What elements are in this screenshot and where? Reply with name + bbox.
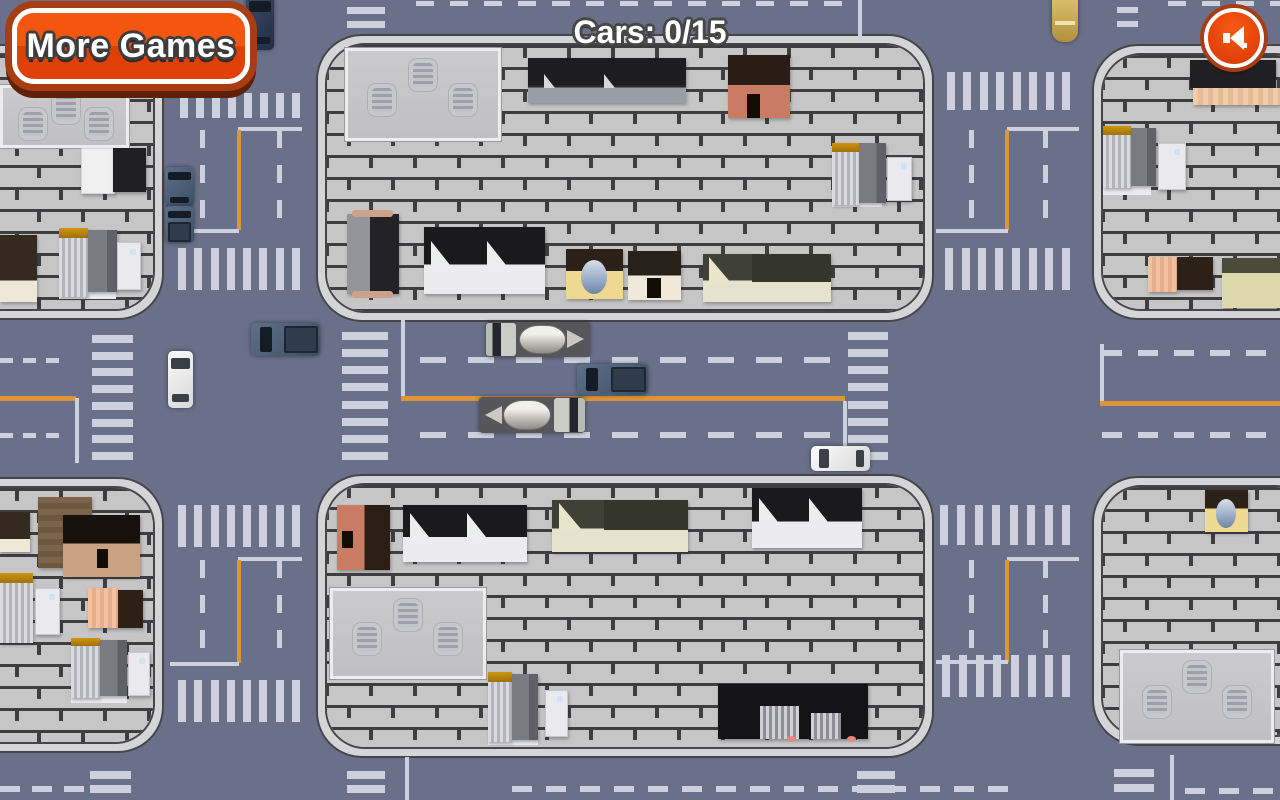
cargo-bed bbox=[168, 222, 192, 242]
building-black-complex bbox=[718, 684, 868, 739]
lane-dash bbox=[0, 433, 13, 438]
roof-vent bbox=[413, 63, 433, 87]
lane-dash bbox=[660, 432, 686, 438]
roof-gable bbox=[431, 241, 450, 265]
crosswalk-stripe bbox=[92, 402, 133, 410]
door bbox=[342, 531, 353, 548]
center-line-orange bbox=[1005, 130, 1009, 230]
lane-dash bbox=[420, 432, 446, 438]
vehicle-pickup[interactable] bbox=[577, 364, 648, 395]
gold-roof-strip bbox=[59, 228, 88, 238]
lane-dash bbox=[277, 130, 282, 148]
crosswalk-stripe bbox=[1010, 505, 1018, 545]
lane-dash bbox=[200, 595, 205, 613]
building-darkbrown-box bbox=[118, 590, 143, 628]
crosswalk-stripe bbox=[244, 93, 252, 118]
lane-dash bbox=[1174, 350, 1194, 356]
windshield bbox=[260, 327, 272, 352]
speaker-icon bbox=[1218, 22, 1250, 54]
truck-cab bbox=[554, 398, 585, 432]
lane-dash bbox=[756, 357, 782, 363]
crosswalk-stripe bbox=[92, 352, 133, 360]
stop-line bbox=[857, 771, 895, 779]
lane-dash bbox=[660, 357, 686, 363]
building-door-unit bbox=[887, 157, 912, 201]
building-door-unit bbox=[128, 652, 150, 696]
crosswalk-stripe bbox=[342, 452, 388, 460]
gold-roof-strip bbox=[71, 638, 100, 646]
roof-vent bbox=[398, 603, 418, 627]
stop-line bbox=[347, 771, 385, 779]
crosswalk-stripe bbox=[976, 655, 984, 697]
roof-gable bbox=[604, 74, 615, 88]
lane-dash bbox=[23, 358, 36, 363]
building-dark-unit bbox=[1131, 128, 1156, 186]
game-stage: More Games Cars: 0/15 bbox=[0, 0, 1280, 800]
building-dark-unit bbox=[88, 230, 117, 292]
crosswalk-stripe bbox=[848, 401, 888, 409]
lane-dash bbox=[682, 786, 702, 792]
center-line-orange bbox=[237, 130, 241, 230]
crosswalk-stripe bbox=[993, 655, 1001, 697]
crosswalk-stripe bbox=[1062, 655, 1070, 697]
truck-cab bbox=[486, 323, 516, 356]
building-dome-shop bbox=[566, 249, 623, 299]
stop-line bbox=[347, 7, 385, 14]
rear-window bbox=[170, 197, 190, 202]
crosswalk-stripe bbox=[92, 385, 133, 393]
windshield bbox=[819, 449, 829, 468]
lane-dash bbox=[1219, 788, 1239, 794]
lane-dash bbox=[1270, 1, 1280, 6]
crosswalk-stripe bbox=[243, 248, 251, 290]
cars-counter: Cars: 0/15 bbox=[540, 14, 760, 51]
door bbox=[97, 549, 108, 568]
crosswalk-stripe bbox=[995, 248, 1003, 290]
crosswalk-stripe bbox=[194, 680, 202, 722]
vehicle-bus[interactable] bbox=[1052, 0, 1078, 42]
vehicle-pickup[interactable] bbox=[165, 206, 194, 243]
lane-dash bbox=[484, 1, 502, 6]
door-light bbox=[130, 249, 136, 255]
crosswalk-stripe bbox=[1013, 72, 1021, 110]
lane-dash bbox=[1210, 350, 1230, 356]
sound-button[interactable] bbox=[1204, 8, 1264, 68]
roof-gable bbox=[709, 257, 731, 283]
lane-dash bbox=[1185, 788, 1205, 794]
building-dark-box bbox=[113, 148, 146, 192]
vehicle-sedan[interactable] bbox=[165, 167, 194, 207]
crosswalk-stripe bbox=[276, 680, 284, 722]
crosswalk-stripe bbox=[947, 72, 955, 110]
lane-dash bbox=[420, 357, 446, 363]
roof-trim bbox=[352, 291, 393, 298]
roof-vent bbox=[1227, 690, 1247, 714]
stop-line bbox=[347, 785, 385, 793]
stop-line bbox=[858, 0, 862, 40]
roof-dome bbox=[581, 260, 607, 294]
roof-gable bbox=[809, 498, 828, 522]
crosswalk-stripe bbox=[292, 93, 300, 118]
roof-gable bbox=[559, 503, 581, 529]
roof-panel bbox=[760, 706, 799, 739]
building-barn-dark bbox=[347, 214, 399, 294]
lane-dash bbox=[1102, 350, 1122, 356]
door bbox=[747, 94, 761, 118]
stop-line bbox=[1117, 21, 1138, 27]
lane-dash bbox=[1253, 788, 1273, 794]
crosswalk-stripe bbox=[180, 93, 188, 118]
lane-dash bbox=[756, 432, 782, 438]
stop-line bbox=[238, 557, 302, 561]
lane-dash bbox=[852, 786, 872, 792]
crosswalk-stripe bbox=[194, 505, 202, 547]
lane-dash bbox=[200, 630, 205, 648]
crosswalk-stripe bbox=[942, 655, 950, 697]
crosswalk-stripe bbox=[945, 248, 953, 290]
roof-section bbox=[604, 500, 688, 530]
lane-dash bbox=[1246, 350, 1266, 356]
center-line-orange bbox=[1100, 401, 1280, 406]
building-factory bbox=[403, 505, 527, 562]
stop-line bbox=[238, 127, 302, 131]
lane-dash bbox=[988, 786, 1008, 792]
lane-dash bbox=[1043, 165, 1048, 183]
gold-roof-strip bbox=[832, 143, 859, 152]
crosswalk-stripe bbox=[194, 248, 202, 290]
door bbox=[647, 278, 661, 298]
center-line-orange bbox=[0, 396, 76, 401]
stop-line bbox=[1114, 784, 1154, 792]
crosswalk-stripe bbox=[92, 435, 133, 443]
vehicle-pickup[interactable] bbox=[251, 323, 320, 356]
lane-dash bbox=[886, 786, 906, 792]
crosswalk-stripe bbox=[259, 505, 267, 547]
crosswalk-stripe bbox=[92, 452, 133, 460]
lane-dash bbox=[32, 786, 52, 792]
roof-vent bbox=[453, 88, 473, 112]
windshield bbox=[249, 1, 270, 12]
building-dark-unit bbox=[512, 674, 538, 740]
stop-line bbox=[936, 229, 1008, 233]
crosswalk-stripe bbox=[959, 655, 967, 697]
crosswalk-stripe bbox=[342, 435, 388, 443]
roof-dome bbox=[1216, 499, 1236, 528]
lane-dash bbox=[716, 786, 736, 792]
lane-dash bbox=[708, 357, 734, 363]
lane-dash bbox=[1043, 560, 1048, 578]
building-dark-unit bbox=[859, 143, 886, 203]
crosswalk-stripe bbox=[1062, 72, 1070, 110]
building-dome-shop bbox=[1205, 490, 1248, 532]
building-peach-box bbox=[1148, 257, 1177, 292]
lane-dash bbox=[1236, 1, 1254, 6]
roof-section bbox=[752, 254, 831, 282]
rear-window bbox=[250, 37, 269, 44]
lane-dash bbox=[654, 1, 672, 6]
lane-dash bbox=[688, 1, 706, 6]
crosswalk-stripe bbox=[342, 349, 388, 357]
crosswalk-stripe bbox=[212, 93, 220, 118]
crosswalk-stripe bbox=[211, 248, 219, 290]
stop-line bbox=[75, 398, 79, 463]
crosswalk-stripe bbox=[259, 680, 267, 722]
crosswalk-stripe bbox=[227, 680, 235, 722]
crosswalk-stripe bbox=[1045, 505, 1053, 545]
lane-dash bbox=[1246, 432, 1266, 438]
vehicle-sedan[interactable] bbox=[168, 351, 193, 408]
vehicle-cement-mixer[interactable] bbox=[479, 397, 585, 433]
lane-dash bbox=[0, 358, 13, 363]
crosswalk-stripe bbox=[992, 505, 1000, 545]
lane-dash bbox=[969, 130, 974, 148]
lane-dash bbox=[277, 560, 282, 578]
cargo-bed bbox=[284, 326, 318, 353]
building-black-tan bbox=[63, 515, 140, 577]
lane-dash bbox=[920, 786, 940, 792]
building-factory bbox=[752, 488, 862, 548]
lane-dash bbox=[1043, 200, 1048, 218]
lane-dash bbox=[516, 357, 542, 363]
roof-vent bbox=[372, 88, 392, 112]
crosswalk-stripe bbox=[342, 332, 388, 340]
crosswalk-stripe bbox=[1027, 505, 1035, 545]
crosswalk-stripe bbox=[342, 418, 388, 426]
building-gray-unit-gold bbox=[832, 143, 859, 205]
crosswalk-stripe bbox=[1028, 655, 1036, 697]
lane-dash bbox=[0, 786, 20, 792]
roof-gable bbox=[487, 241, 506, 265]
lane-dash bbox=[416, 1, 434, 6]
door-light bbox=[901, 163, 907, 169]
crosswalk-stripe bbox=[292, 505, 300, 547]
roof-vent bbox=[56, 96, 76, 120]
crosswalk-stripe bbox=[276, 93, 284, 118]
crosswalk-stripe bbox=[848, 349, 888, 357]
lane-dash bbox=[580, 786, 600, 792]
building-door-unit bbox=[35, 588, 60, 635]
building-wh bbox=[330, 588, 486, 679]
crosswalk-stripe bbox=[342, 366, 388, 374]
building-door-unit bbox=[117, 242, 141, 290]
roof-dot bbox=[787, 736, 796, 742]
lane-dash bbox=[722, 1, 740, 6]
lane-dash bbox=[612, 432, 638, 438]
lane-dash bbox=[200, 200, 205, 218]
vehicle-cement-mixer[interactable] bbox=[486, 322, 590, 357]
vehicle-sedan[interactable] bbox=[246, 0, 274, 50]
crosswalk-stripe bbox=[228, 93, 236, 118]
crosswalk-stripe bbox=[243, 680, 251, 722]
lane-dash bbox=[200, 560, 205, 578]
stop-line bbox=[405, 757, 409, 800]
windshield bbox=[586, 368, 598, 392]
lane-dash bbox=[450, 1, 468, 6]
lane-dash bbox=[586, 1, 604, 6]
lane-dash bbox=[756, 1, 774, 6]
lane-dash bbox=[1210, 432, 1230, 438]
more-games-label: More Games bbox=[26, 27, 235, 66]
crosswalk-stripe bbox=[227, 505, 235, 547]
lane-dash bbox=[1043, 595, 1048, 613]
building-darkbrown-box bbox=[1177, 257, 1213, 290]
crosswalk-stripe bbox=[342, 383, 388, 391]
lane-dash bbox=[546, 786, 566, 792]
stop-line bbox=[1117, 7, 1138, 13]
building-peach-strip bbox=[1193, 88, 1280, 105]
lane-dash bbox=[46, 433, 59, 438]
center-line-orange bbox=[401, 396, 845, 401]
roof-gable bbox=[544, 74, 555, 88]
lane-dash bbox=[818, 786, 838, 792]
crosswalk-stripe bbox=[276, 248, 284, 290]
roof-trim bbox=[352, 210, 393, 217]
roof-dot bbox=[847, 736, 856, 742]
crosswalk-stripe bbox=[1012, 248, 1020, 290]
building-gray-unit-gold bbox=[71, 638, 100, 698]
lane-dash bbox=[64, 786, 84, 792]
mixer-chute bbox=[567, 330, 584, 348]
crosswalk-stripe bbox=[211, 680, 219, 722]
crosswalk-stripe bbox=[227, 248, 235, 290]
crosswalk-stripe bbox=[1029, 248, 1037, 290]
crosswalk-stripe bbox=[292, 680, 300, 722]
building-dark-long bbox=[528, 58, 686, 103]
lane-dash bbox=[954, 786, 974, 792]
crosswalk-stripe bbox=[962, 248, 970, 290]
building-door-unit bbox=[545, 690, 568, 737]
lane-dash bbox=[969, 165, 974, 183]
building-darkbrown-cream bbox=[0, 512, 30, 552]
lane-dash bbox=[620, 1, 638, 6]
crosswalk-stripe bbox=[243, 505, 251, 547]
building-cream-shop bbox=[628, 251, 681, 300]
roof-gable bbox=[467, 513, 486, 537]
stop-line bbox=[170, 662, 239, 666]
lane-dash bbox=[790, 1, 808, 6]
lane-dash bbox=[46, 358, 59, 363]
crosswalk-stripe bbox=[996, 72, 1004, 110]
stop-line bbox=[401, 320, 405, 398]
lane-dash bbox=[277, 200, 282, 218]
crosswalk-stripe bbox=[92, 419, 133, 427]
building-olive-long bbox=[703, 254, 831, 302]
mixer-drum bbox=[519, 325, 566, 354]
crosswalk-stripe bbox=[342, 401, 388, 409]
crosswalk-stripe bbox=[848, 332, 888, 340]
side-stripe bbox=[1055, 21, 1075, 24]
roof-vent bbox=[438, 627, 458, 651]
lane-dash bbox=[1202, 1, 1220, 6]
lane-dash bbox=[969, 595, 974, 613]
building-factory bbox=[424, 227, 545, 294]
lane-dash bbox=[23, 433, 36, 438]
lane-dash bbox=[1138, 432, 1158, 438]
roof-vent bbox=[1147, 690, 1167, 714]
building-gray-unit-gold bbox=[1103, 126, 1131, 188]
gold-roof-strip bbox=[0, 573, 33, 583]
gold-roof-strip bbox=[1103, 126, 1131, 135]
roof-vent bbox=[1187, 665, 1207, 689]
lane-dash bbox=[200, 130, 205, 148]
windshield bbox=[171, 358, 190, 369]
lane-dash bbox=[708, 432, 734, 438]
center-line-orange bbox=[1005, 560, 1009, 662]
cargo-bed bbox=[611, 367, 646, 392]
building-gray-unit-gold bbox=[0, 573, 33, 643]
lane-dash bbox=[512, 786, 532, 792]
building-door-unit bbox=[1158, 143, 1186, 190]
crosswalk-stripe bbox=[975, 505, 983, 545]
stop-line bbox=[90, 785, 131, 793]
crosswalk-stripe bbox=[1011, 655, 1019, 697]
windshield bbox=[168, 172, 190, 180]
gold-roof-strip bbox=[488, 672, 512, 682]
door-light bbox=[1174, 149, 1180, 155]
crosswalk-stripe bbox=[978, 248, 986, 290]
lane-dash bbox=[784, 786, 804, 792]
crosswalk-stripe bbox=[259, 248, 267, 290]
crosswalk-stripe bbox=[211, 505, 219, 547]
crosswalk-stripe bbox=[178, 680, 186, 722]
crosswalk-stripe bbox=[940, 505, 948, 545]
lane-dash bbox=[518, 1, 536, 6]
lane-dash bbox=[1102, 432, 1122, 438]
rear-window bbox=[856, 450, 863, 467]
crosswalk-stripe bbox=[1045, 248, 1053, 290]
crosswalk-stripe bbox=[196, 93, 204, 118]
lane-dash bbox=[1168, 1, 1186, 6]
door-light bbox=[49, 594, 55, 600]
crosswalk-stripe bbox=[276, 505, 284, 547]
building-gray-unit-gold bbox=[488, 672, 512, 742]
crosswalk-stripe bbox=[260, 93, 268, 118]
door-light bbox=[139, 658, 145, 664]
lane-dash bbox=[969, 630, 974, 648]
building-white-box bbox=[81, 148, 115, 194]
stop-line bbox=[347, 21, 385, 28]
more-games-button[interactable]: More Games bbox=[12, 8, 250, 84]
lane-dash bbox=[614, 786, 634, 792]
crosswalk-stripe bbox=[1045, 655, 1053, 697]
roof-panel bbox=[811, 713, 841, 739]
roof-vent bbox=[357, 627, 377, 651]
lane-dash bbox=[277, 630, 282, 648]
lane-dash bbox=[804, 432, 830, 438]
lane-dash bbox=[1043, 130, 1048, 148]
roof-vent bbox=[89, 112, 109, 136]
lane-dash bbox=[824, 1, 842, 6]
building-red-house bbox=[728, 55, 790, 118]
building-khaki-L bbox=[1222, 258, 1280, 308]
crosswalk-stripe bbox=[848, 418, 888, 426]
lane-dash bbox=[277, 165, 282, 183]
lane-dash bbox=[648, 786, 668, 792]
crosswalk-stripe bbox=[980, 72, 988, 110]
crosswalk-stripe bbox=[848, 366, 888, 374]
vehicle-sedan[interactable] bbox=[811, 446, 870, 471]
rear-window bbox=[172, 394, 189, 401]
lane-dash bbox=[969, 560, 974, 578]
roof-gable bbox=[759, 498, 778, 522]
roof-gable bbox=[410, 513, 429, 537]
crosswalk-stripe bbox=[1062, 248, 1070, 290]
crosswalk-stripe bbox=[178, 248, 186, 290]
windshield bbox=[168, 211, 190, 218]
crosswalk-stripe bbox=[1062, 505, 1070, 545]
building-wh bbox=[1120, 650, 1274, 743]
building-wh bbox=[0, 85, 129, 148]
